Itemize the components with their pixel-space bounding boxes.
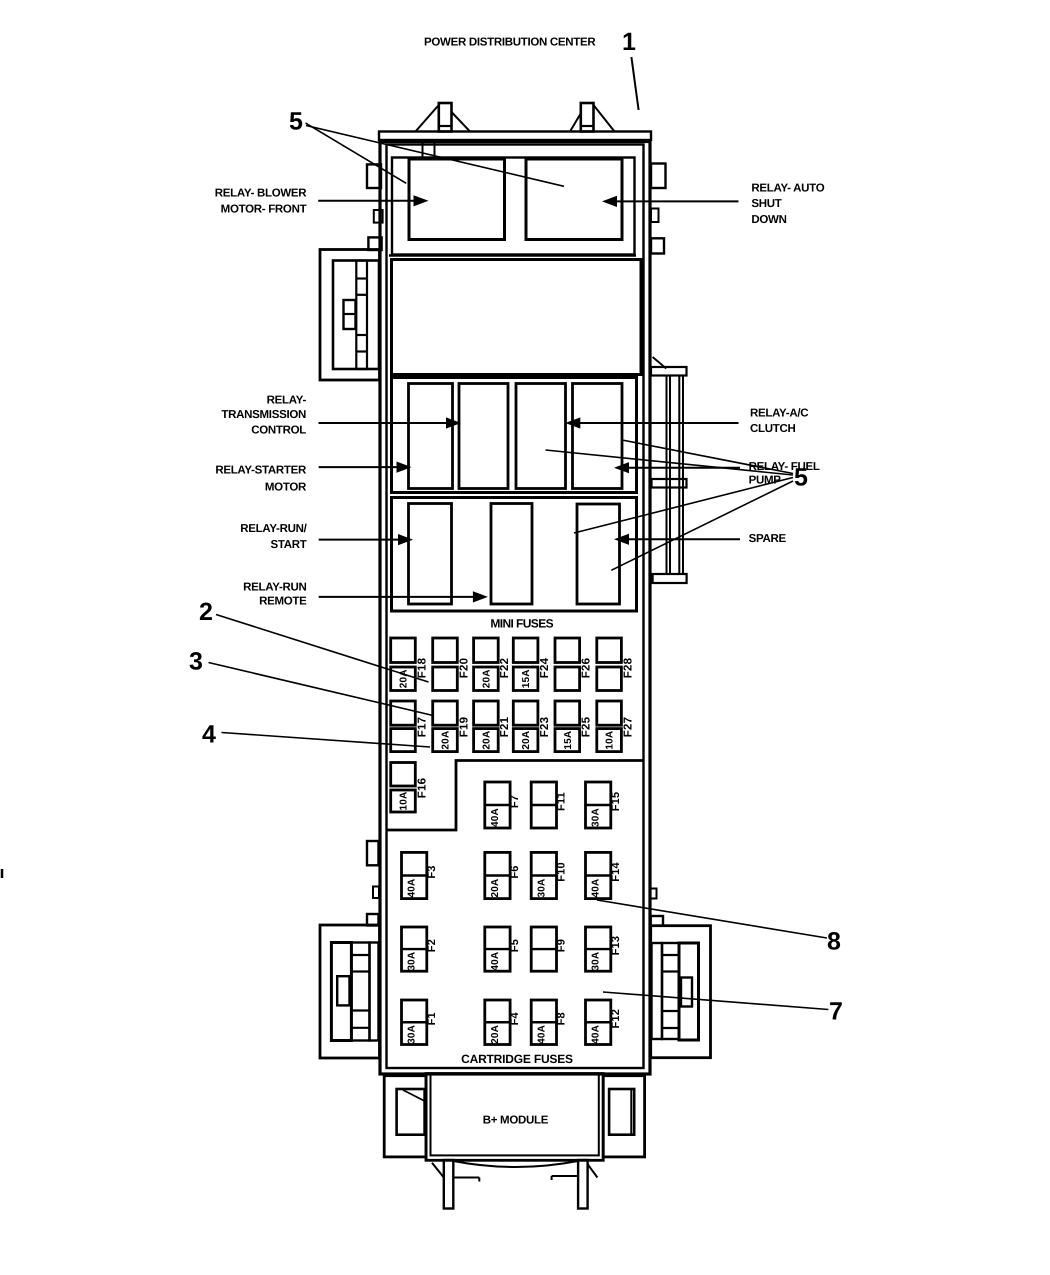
svg-text:2: 2 [199,598,213,626]
svg-text:B+ MODULE: B+ MODULE [483,1115,549,1127]
svg-text:RELAY-A/C: RELAY-A/C [750,408,808,420]
svg-text:RELAY-RUN/: RELAY-RUN/ [240,523,307,535]
svg-text:F21: F21 [499,716,511,737]
svg-text:F3: F3 [426,865,438,878]
svg-text:20A: 20A [490,879,501,898]
svg-text:20A: 20A [521,731,532,750]
svg-text:F4: F4 [509,1011,521,1025]
svg-text:F12: F12 [610,1009,622,1029]
svg-text:SPARE: SPARE [749,533,787,545]
svg-text:15A: 15A [563,731,574,750]
svg-text:F17: F17 [416,717,428,737]
svg-text:40A: 40A [536,1025,547,1044]
svg-text:F9: F9 [556,939,568,952]
svg-text:F6: F6 [509,865,521,878]
svg-text:F13: F13 [610,936,622,956]
svg-text:4: 4 [202,721,216,749]
svg-text:RELAY- AUTO: RELAY- AUTO [751,182,824,194]
svg-text:40A: 40A [407,879,418,898]
svg-text:F24: F24 [539,657,551,678]
svg-text:F28: F28 [622,657,634,678]
svg-text:REMOTE: REMOTE [259,596,307,608]
svg-text:CONTROL: CONTROL [251,425,306,437]
svg-text:F23: F23 [539,717,551,737]
svg-text:MINI FUSES: MINI FUSES [490,617,553,631]
svg-text:TRANSMISSION: TRANSMISSION [221,409,306,421]
svg-text:15A: 15A [521,669,532,688]
svg-text:F5: F5 [509,939,521,952]
svg-text:5: 5 [794,464,808,492]
svg-text:MOTOR: MOTOR [265,482,307,494]
svg-text:F25: F25 [581,716,593,737]
svg-text:30A: 30A [591,952,602,971]
svg-text:10A: 10A [399,792,410,811]
svg-text:SHUT: SHUT [751,198,781,210]
svg-text:F19: F19 [458,717,470,737]
svg-text:RELAY-STARTER: RELAY-STARTER [215,465,307,477]
svg-text:RELAY-: RELAY- [267,395,307,407]
svg-text:20A: 20A [399,669,410,688]
svg-text:40A: 40A [490,808,501,827]
svg-text:F22: F22 [499,658,511,678]
svg-text:F27: F27 [622,717,634,737]
svg-text:F11: F11 [556,792,568,811]
svg-text:40A: 40A [591,1025,602,1044]
svg-text:CLUTCH: CLUTCH [750,423,795,435]
svg-text:F10: F10 [556,862,568,882]
svg-text:8: 8 [827,928,841,956]
svg-text:POWER DISTRIBUTION CENTER: POWER DISTRIBUTION CENTER [424,37,596,49]
svg-text:F20: F20 [458,658,470,678]
svg-text:20A: 20A [481,731,492,750]
svg-text:30A: 30A [407,952,418,971]
svg-text:10A: 10A [605,731,616,750]
svg-text:20A: 20A [481,669,492,688]
svg-text:RELAY- BLOWER: RELAY- BLOWER [215,188,308,200]
svg-text:RELAY-RUN: RELAY-RUN [243,582,306,594]
svg-text:20A: 20A [441,731,452,750]
svg-text:20A: 20A [490,1025,501,1044]
svg-text:DOWN: DOWN [751,214,786,226]
svg-text:F14: F14 [610,862,622,882]
svg-text:40A: 40A [490,952,501,971]
svg-text:7: 7 [829,998,843,1026]
svg-text:CARTRIDGE FUSES: CARTRIDGE FUSES [461,1052,573,1066]
svg-text:30A: 30A [536,879,547,898]
svg-text:30A: 30A [591,808,602,827]
svg-text:F16: F16 [416,778,428,798]
svg-text:40A: 40A [591,879,602,898]
svg-text:1: 1 [622,28,636,56]
svg-text:START: START [271,539,307,551]
svg-text:F1: F1 [426,1012,438,1025]
svg-text:F15: F15 [610,792,622,812]
svg-text:F8: F8 [556,1012,568,1025]
svg-text:5: 5 [289,108,303,136]
svg-text:F18: F18 [416,657,428,678]
svg-text:F2: F2 [426,939,438,952]
svg-text:MOTOR- FRONT: MOTOR- FRONT [221,204,307,216]
svg-text:F26: F26 [581,658,593,678]
svg-text:30A: 30A [407,1025,418,1044]
svg-text:F7: F7 [509,795,521,808]
svg-text:3: 3 [189,648,203,676]
